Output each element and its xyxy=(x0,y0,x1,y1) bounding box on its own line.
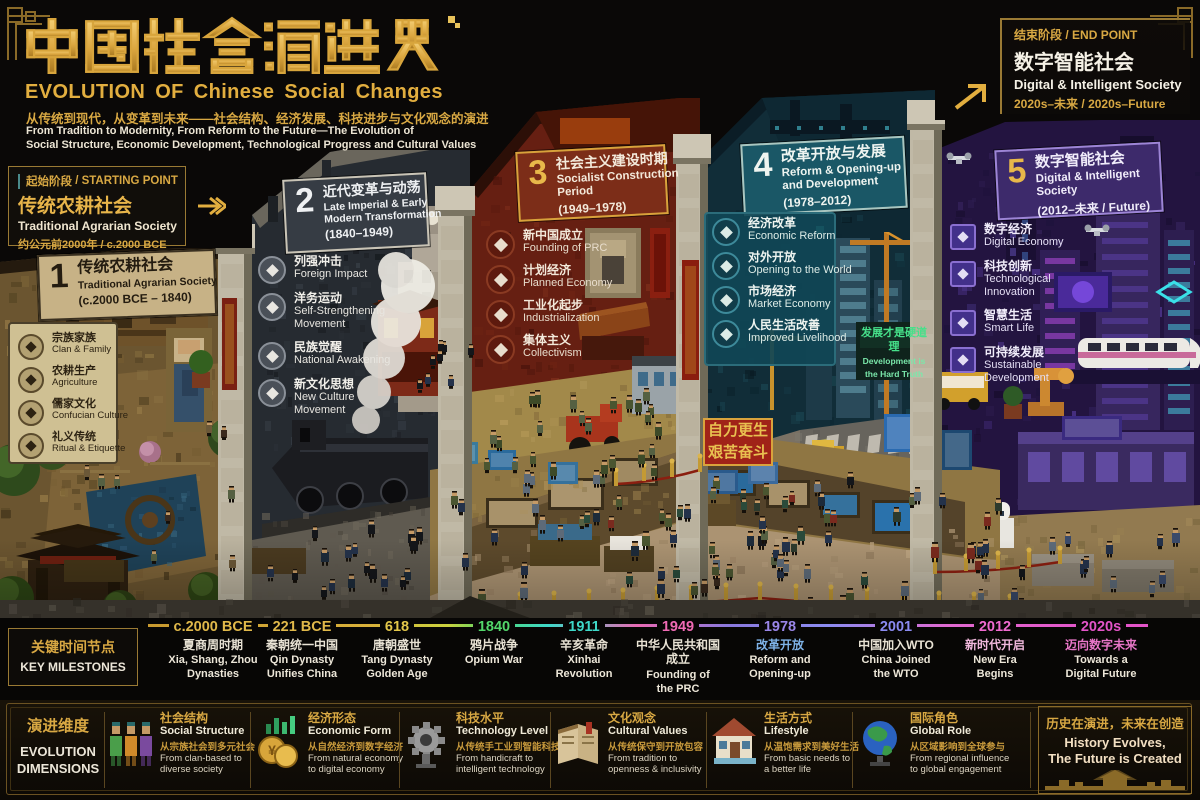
svg-text:¥: ¥ xyxy=(268,742,276,758)
